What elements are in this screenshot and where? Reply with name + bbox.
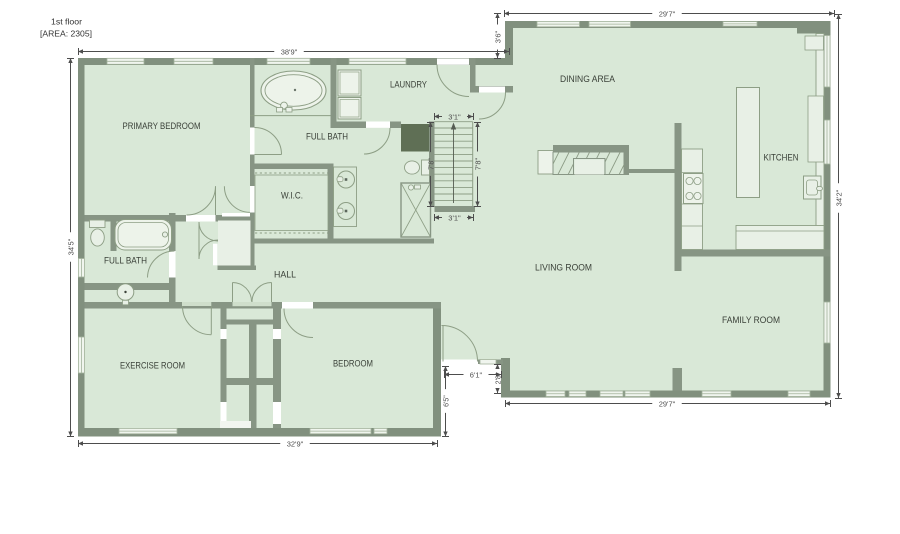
svg-text:LAUNDRY: LAUNDRY (390, 80, 427, 90)
svg-text:6'5": 6'5" (443, 395, 450, 407)
svg-text:3'1": 3'1" (448, 112, 461, 121)
svg-text:29'7": 29'7" (659, 9, 676, 18)
svg-text:29'7": 29'7" (659, 399, 676, 408)
svg-text:KITCHEN: KITCHEN (764, 153, 799, 163)
svg-text:7'8": 7'8" (428, 158, 435, 170)
svg-text:LIVING ROOM: LIVING ROOM (535, 263, 592, 273)
svg-text:7'8": 7'8" (473, 157, 482, 170)
svg-text:DINING AREA: DINING AREA (560, 74, 616, 84)
svg-text:PRIMARY BEDROOM: PRIMARY BEDROOM (123, 121, 201, 131)
svg-text:1st floor: 1st floor (51, 18, 82, 27)
svg-text:34'5": 34'5" (66, 238, 75, 255)
svg-text:3'6": 3'6" (493, 30, 502, 43)
svg-text:W.I.C.: W.I.C. (281, 191, 303, 201)
svg-text:FAMILY ROOM: FAMILY ROOM (722, 315, 780, 325)
svg-text:34'2": 34'2" (834, 189, 843, 206)
svg-text:BEDROOM: BEDROOM (333, 359, 373, 369)
svg-text:3'1": 3'1" (448, 213, 461, 222)
svg-text:EXERCISE ROOM: EXERCISE ROOM (120, 361, 185, 371)
svg-text:32'9": 32'9" (287, 439, 304, 448)
svg-text:2'8": 2'8" (495, 372, 502, 384)
svg-text:FULL BATH: FULL BATH (306, 132, 348, 142)
svg-text:HALL: HALL (274, 270, 296, 280)
svg-text:[AREA: 2305]: [AREA: 2305] (40, 30, 92, 39)
svg-text:38'9": 38'9" (281, 47, 298, 56)
svg-text:FULL BATH: FULL BATH (104, 256, 147, 266)
svg-text:6'1": 6'1" (470, 370, 483, 379)
